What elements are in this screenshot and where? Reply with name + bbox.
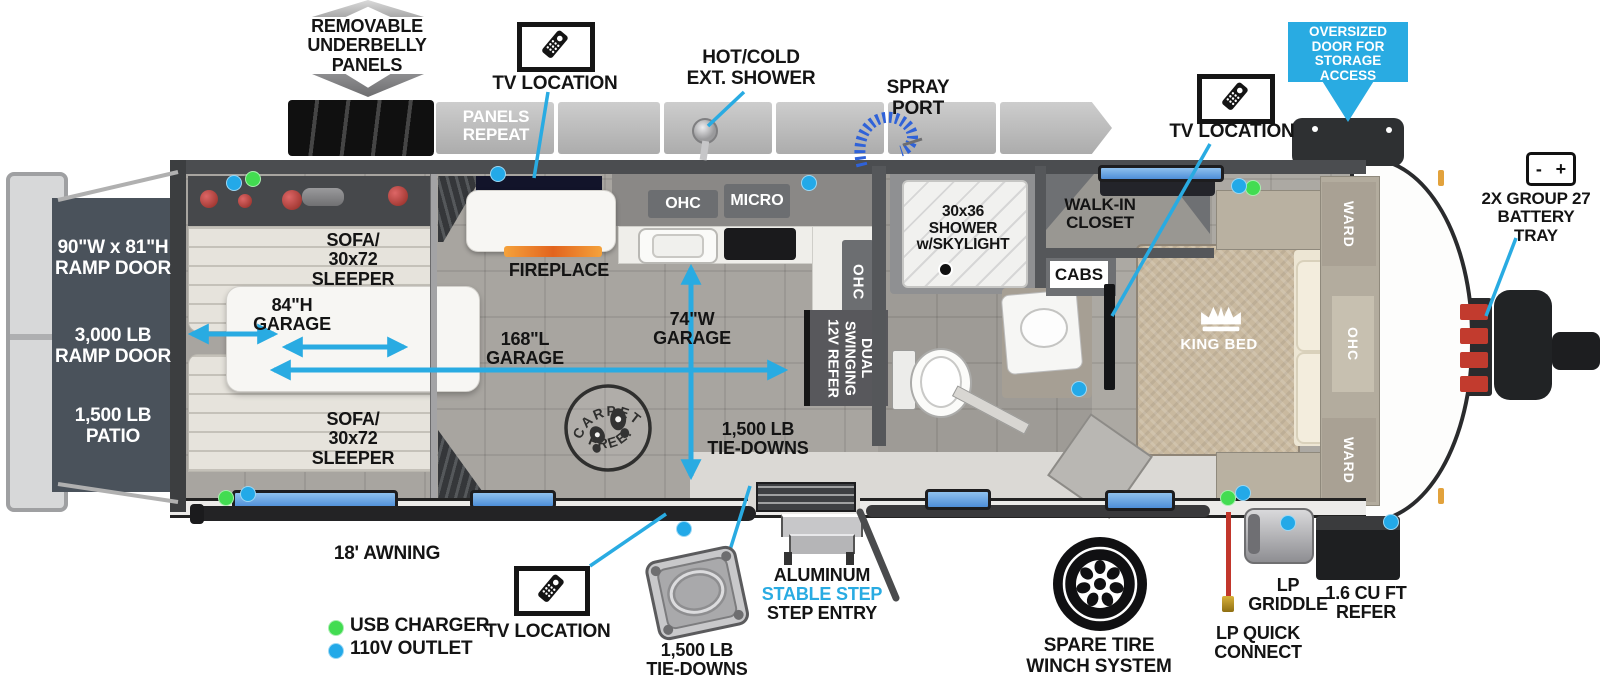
- outlet-110v-dot: [1235, 485, 1251, 501]
- arrow-up-icon: [312, 0, 424, 17]
- sofa-top-label: SOFA/ 30x72 SLEEPER: [285, 231, 421, 289]
- skylight-drain-icon: [938, 262, 953, 277]
- tv-icon: [1197, 74, 1275, 124]
- ohc-side-label: OHC: [849, 264, 866, 300]
- micro-label: MICRO: [730, 192, 783, 210]
- outlet-110v-dot: [240, 486, 256, 502]
- fireplace-flame: [504, 246, 602, 257]
- garage-height-label: 84"H GARAGE: [238, 296, 346, 335]
- king-bed-label: KING BED: [1164, 337, 1274, 353]
- window: [925, 489, 991, 510]
- patio-support-line: [58, 172, 178, 200]
- outlet-110v-dot: [1071, 381, 1087, 397]
- sports-gear: [388, 186, 408, 206]
- battery-cell: [1460, 328, 1488, 344]
- floorplan-canvas: 90"W x 81"H RAMP DOOR 3,000 LB RAMP DOOR…: [0, 0, 1600, 679]
- exterior-panel-arrow: [1000, 102, 1112, 154]
- oversized-storage-door: [1292, 118, 1404, 166]
- tv-icon: [514, 566, 590, 616]
- outlet-110v-dot: [1231, 178, 1247, 194]
- lp-quick-connect-label: LP QUICK CONNECT: [1198, 624, 1318, 663]
- crown-icon: [1198, 304, 1244, 334]
- oversized-door-arrow: OVERSIZED DOOR FOR STORAGE ACCESS: [1288, 22, 1408, 122]
- entry-door: [756, 482, 856, 512]
- panels-repeat-label: PANELS REPEAT: [440, 108, 552, 145]
- nightstand-top: [1216, 190, 1324, 250]
- spare-tire-label: SPARE TIRE WINCH SYSTEM: [1014, 636, 1184, 677]
- battery-plus: +: [1556, 159, 1567, 180]
- step-entry-line2: STABLE STEP: [752, 585, 892, 604]
- sports-gear: [282, 190, 302, 210]
- gear-bag: [302, 188, 344, 206]
- cabs-label: CABS: [1055, 265, 1103, 285]
- outlet-110v-dot: [226, 175, 242, 191]
- ohc-kitchen-box: OHC: [648, 190, 718, 218]
- lp-hose-fitting: [1222, 596, 1234, 612]
- storage-door-screw-right: [1386, 127, 1392, 133]
- usb-charger-dot: [1245, 180, 1261, 196]
- ohc-bedroom-label: OHC: [1345, 327, 1361, 361]
- step-leg: [846, 552, 854, 565]
- sports-gear: [200, 190, 218, 208]
- step-leg: [784, 552, 792, 565]
- fireplace-label: FIREPLACE: [507, 261, 611, 280]
- spray-port-label: SPRAY PORT: [868, 78, 968, 119]
- ward-top-label: WARD: [1341, 201, 1357, 248]
- wardrobe-bottom: WARD: [1322, 418, 1376, 502]
- outlet-110v-dot: [1383, 514, 1399, 530]
- garage-length-label: 168"L GARAGE: [470, 330, 580, 369]
- closet-bottom-wall: [1046, 248, 1214, 258]
- ramp-door-size-label: 90"W x 81"H RAMP DOOR: [48, 238, 178, 279]
- outlet-110v-dot: [801, 175, 817, 191]
- ohc-bedroom: OHC: [1332, 296, 1374, 392]
- garage-width-label: 74"W GARAGE: [638, 310, 746, 349]
- battery-icon: -+: [1526, 152, 1576, 186]
- tie-downs-bottom-label: 1,500 LB TIE-DOWNS: [632, 641, 762, 679]
- fireplace-cabinet: [466, 190, 616, 252]
- awning-end-cap: [190, 504, 204, 524]
- exterior-panel: [558, 102, 660, 154]
- awning-bar: [196, 506, 756, 521]
- usb-charger-dot: [1220, 490, 1236, 506]
- legend-outlet-dot: [328, 643, 344, 659]
- patio-label: 1,500 LB PATIO: [48, 406, 178, 447]
- remote-icon: [522, 27, 590, 67]
- battery-minus: -: [1536, 159, 1542, 180]
- outlet-110v-dot: [490, 166, 506, 182]
- remote-icon: [1202, 79, 1270, 119]
- window: [1105, 490, 1175, 511]
- hitch-coupler: [1552, 332, 1600, 370]
- tv-location-label-bottom: TV LOCATION: [482, 622, 614, 643]
- sofa-bottom-label: SOFA/ 30x72 SLEEPER: [285, 410, 421, 468]
- griddle-side-cap: [1248, 514, 1260, 554]
- tie-downs-interior-label: 1,500 LB TIE-DOWNS: [692, 420, 824, 459]
- tv-location-label-right: TV LOCATION: [1166, 122, 1298, 143]
- wardrobe-top: WARD: [1322, 182, 1376, 266]
- usb-charger-dot: [245, 171, 261, 187]
- lp-hose: [1226, 512, 1231, 598]
- clearance-light-top: [1438, 170, 1444, 186]
- kitchen-bath-wall: [872, 166, 886, 446]
- clearance-light-bottom: [1438, 488, 1444, 504]
- battery-cell: [1460, 352, 1488, 368]
- battery-tray-label: 2X GROUP 27 BATTERY TRAY: [1472, 190, 1600, 245]
- legend-usb-dot: [328, 620, 344, 636]
- refer-label: DUAL SWINGING 12V REFER: [824, 319, 874, 398]
- toilet-seat: [920, 356, 962, 408]
- step-entry-line1: ALUMINUM: [752, 566, 892, 585]
- battery-cell: [1460, 304, 1488, 320]
- usb-charger-dot: [218, 490, 234, 506]
- remote-icon: [519, 571, 585, 611]
- underbelly-panels-image: [288, 100, 434, 156]
- underbelly-label: REMOVABLE UNDERBELLY PANELS: [298, 17, 436, 75]
- outlet-110v-dot: [1280, 515, 1296, 531]
- shower-label: 30x36 SHOWER w/SKYLIGHT: [888, 204, 1038, 254]
- awning-label: 18' AWNING: [322, 544, 452, 565]
- tv-icon: [517, 22, 595, 72]
- garage-divider-pole: [430, 174, 437, 502]
- refer-16-label: 1.6 CU FT REFER: [1308, 584, 1424, 623]
- storage-door-screw-left: [1312, 126, 1318, 132]
- ward-bottom-label: WARD: [1341, 437, 1357, 484]
- sports-gear: [238, 194, 252, 208]
- microwave-box: MICRO: [724, 184, 790, 218]
- tie-down-plate-image: [638, 542, 756, 642]
- cabs-box: CABS: [1050, 261, 1108, 288]
- window: [1098, 165, 1224, 182]
- entry-step-2: [789, 534, 855, 554]
- outlet-110v-dot: [676, 521, 692, 537]
- sink-basin: [652, 234, 704, 258]
- walk-in-closet-label: WALK-IN CLOSET: [1034, 196, 1166, 233]
- ext-shower-label: HOT/COLD EXT. SHOWER: [676, 48, 826, 89]
- spare-tire-icon: [1050, 534, 1150, 634]
- propane-cover: [1494, 290, 1552, 400]
- vanity-bowl: [1020, 308, 1068, 348]
- exterior-panel: [664, 102, 772, 154]
- ohc-kitchen-label: OHC: [665, 195, 701, 213]
- bedroom-tv-panel: [1104, 284, 1115, 390]
- ramp-door-weight-label: 3,000 LB RAMP DOOR: [48, 326, 178, 367]
- arrow-down-icon: [312, 74, 424, 97]
- cooktop: [724, 228, 796, 260]
- battery-cell: [1460, 376, 1488, 392]
- step-entry-line3: STEP ENTRY: [752, 604, 892, 623]
- tv-location-label-top: TV LOCATION: [487, 74, 623, 95]
- oversized-door-label: OVERSIZED DOOR FOR STORAGE ACCESS: [1288, 25, 1408, 83]
